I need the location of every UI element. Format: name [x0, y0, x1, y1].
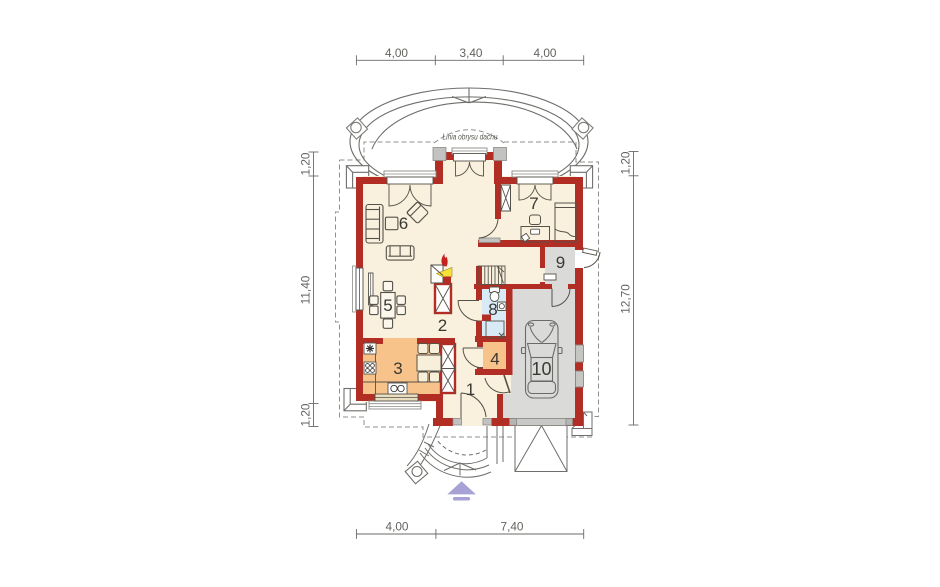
- svg-text:7,40: 7,40: [501, 520, 524, 534]
- svg-text:11,40: 11,40: [299, 275, 313, 304]
- svg-text:4,00: 4,00: [386, 520, 409, 534]
- svg-text:4,00: 4,00: [385, 46, 408, 60]
- svg-text:5: 5: [383, 296, 392, 315]
- svg-text:4: 4: [490, 350, 499, 369]
- svg-text:7: 7: [529, 194, 538, 213]
- svg-text:6: 6: [399, 214, 408, 233]
- svg-text:4,00: 4,00: [534, 46, 557, 60]
- svg-text:10: 10: [531, 359, 551, 379]
- svg-text:9: 9: [556, 253, 565, 272]
- svg-text:1,20: 1,20: [299, 403, 313, 426]
- svg-text:1,20: 1,20: [299, 152, 313, 175]
- svg-text:Linia obrysu dachu: Linia obrysu dachu: [443, 132, 498, 142]
- svg-text:1: 1: [466, 380, 475, 399]
- svg-text:1,20: 1,20: [619, 151, 633, 174]
- svg-text:3,40: 3,40: [460, 46, 483, 60]
- svg-text:8: 8: [488, 300, 497, 319]
- svg-text:3: 3: [393, 359, 402, 378]
- svg-text:2: 2: [438, 316, 447, 335]
- svg-text:12,70: 12,70: [619, 284, 633, 314]
